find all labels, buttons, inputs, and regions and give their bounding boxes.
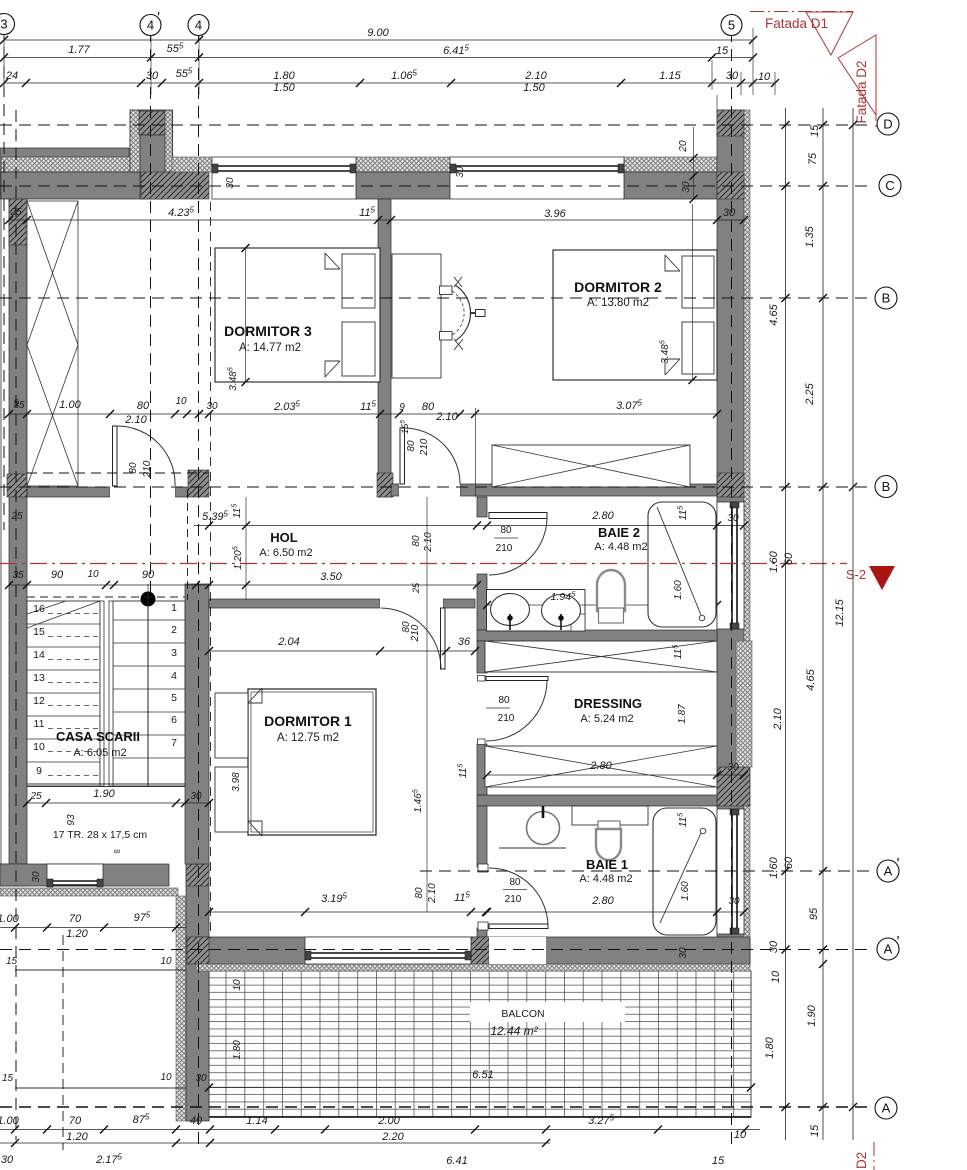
svg-text:DRESSING: DRESSING (574, 696, 642, 711)
svg-text:30: 30 (726, 70, 739, 82)
svg-text:A: 14.77 m2: A: 14.77 m2 (239, 342, 301, 354)
svg-text:11: 11 (34, 718, 45, 730)
svg-text:30: 30 (681, 181, 692, 193)
svg-text:210: 210 (505, 894, 522, 905)
svg-text:B: B (882, 479, 891, 494)
svg-text:4.65: 4.65 (768, 303, 780, 325)
svg-text:5: 5 (171, 692, 177, 704)
svg-text:2.04: 2.04 (277, 636, 299, 648)
svg-text:25: 25 (9, 207, 22, 218)
svg-text:30: 30 (146, 70, 159, 82)
svg-text:2.80: 2.80 (589, 760, 612, 772)
svg-text:2.25: 2.25 (804, 382, 816, 405)
svg-text:70: 70 (69, 913, 82, 925)
svg-text:1.15: 1.15 (659, 70, 681, 82)
svg-text:10: 10 (232, 979, 243, 991)
svg-text:10: 10 (87, 569, 99, 580)
svg-text:210: 210 (498, 713, 515, 724)
svg-text:1.00: 1.00 (59, 399, 81, 411)
svg-text:': ' (897, 933, 900, 950)
svg-text:4.65: 4.65 (805, 668, 817, 690)
svg-text:30: 30 (727, 762, 739, 773)
svg-text:15: 15 (33, 626, 45, 638)
svg-text:9: 9 (399, 402, 405, 413)
svg-text:A: 5.24 m2: A: 5.24 m2 (580, 713, 633, 725)
svg-text:1.14: 1.14 (246, 1115, 267, 1127)
svg-text:80: 80 (406, 440, 417, 452)
svg-text:A: A (882, 1101, 891, 1116)
svg-text:BAIE 2: BAIE 2 (598, 525, 640, 540)
svg-text:S-2: S-2 (846, 567, 866, 582)
svg-text:70: 70 (69, 1115, 82, 1127)
svg-text:80: 80 (128, 462, 139, 474)
svg-text:C: C (885, 178, 894, 193)
svg-text:3.96: 3.96 (544, 208, 566, 220)
svg-text:17 TR. 28 x 17,5 cm: 17 TR. 28 x 17,5 cm (53, 829, 148, 841)
svg-text:90: 90 (51, 569, 64, 581)
svg-text:2.80: 2.80 (591, 510, 614, 522)
svg-text:DORMITOR 1: DORMITOR 1 (264, 713, 352, 729)
svg-text:A: 13.80 m2: A: 13.80 m2 (587, 297, 649, 309)
svg-text:30: 30 (727, 513, 739, 524)
svg-text:4: 4 (195, 18, 202, 33)
svg-text:5: 5 (728, 18, 735, 33)
svg-text:A: 6.50 m2: A: 6.50 m2 (259, 547, 312, 559)
svg-text:25: 25 (411, 582, 421, 594)
svg-text:Fatada D2: Fatada D2 (854, 60, 869, 123)
svg-text:15: 15 (712, 1155, 725, 1167)
svg-text:DORMITOR 2: DORMITOR 2 (574, 279, 662, 295)
svg-text:80: 80 (500, 525, 512, 536)
svg-text:80: 80 (509, 877, 521, 888)
svg-text:': ' (157, 9, 160, 26)
svg-text:30: 30 (195, 1073, 207, 1084)
svg-text:3.98: 3.98 (231, 772, 242, 792)
svg-text:1.80: 1.80 (764, 1036, 776, 1058)
svg-text:2.10: 2.10 (427, 883, 438, 904)
svg-text:1.60: 1.60 (768, 856, 780, 878)
svg-text:210: 210 (142, 460, 153, 478)
svg-text:6: 6 (171, 714, 177, 726)
svg-text:80: 80 (422, 401, 435, 413)
svg-text:95: 95 (808, 907, 820, 920)
svg-text:13: 13 (33, 672, 45, 684)
svg-text:Fatada D1: Fatada D1 (765, 16, 828, 31)
svg-text:1: 1 (171, 602, 177, 614)
svg-text:1.20: 1.20 (66, 928, 88, 940)
svg-text:15: 15 (6, 956, 18, 967)
svg-text:2.00: 2.00 (377, 1115, 400, 1127)
svg-text:30: 30 (206, 401, 218, 412)
svg-text:HOL: HOL (270, 530, 298, 545)
svg-text:DORMITOR 3: DORMITOR 3 (224, 323, 312, 339)
svg-text:10: 10 (770, 970, 782, 983)
svg-text:1.50: 1.50 (523, 82, 545, 94)
svg-text:3.50: 3.50 (320, 571, 342, 583)
svg-text:30: 30 (728, 896, 740, 907)
svg-text:30: 30 (190, 791, 202, 802)
svg-text:1.87: 1.87 (677, 704, 688, 724)
svg-text:80: 80 (411, 535, 422, 547)
svg-text:A: 12.75 m2: A: 12.75 m2 (277, 732, 339, 744)
svg-text:D2: D2 (854, 1152, 869, 1169)
svg-text:2.10: 2.10 (435, 411, 458, 423)
svg-text:1.60: 1.60 (673, 580, 684, 600)
svg-text:1.00: 1.00 (0, 913, 20, 925)
svg-text:40: 40 (190, 1115, 203, 1127)
svg-text:1.80: 1.80 (232, 1040, 243, 1060)
svg-text:80: 80 (414, 887, 425, 899)
svg-text:10: 10 (758, 71, 771, 83)
svg-text:10: 10 (160, 1072, 172, 1083)
svg-text:3: 3 (171, 647, 177, 659)
svg-text:2.80: 2.80 (591, 895, 614, 907)
svg-text:6.41: 6.41 (446, 1155, 467, 1167)
svg-text:30: 30 (225, 177, 236, 189)
svg-text:93: 93 (66, 814, 77, 826)
svg-text:1.60: 1.60 (680, 881, 691, 901)
svg-text:30: 30 (455, 166, 466, 178)
svg-text:BALCON: BALCON (501, 1008, 544, 1020)
svg-text:10: 10 (734, 1129, 747, 1141)
svg-text:210: 210 (410, 624, 421, 642)
svg-text:30: 30 (768, 940, 780, 953)
svg-text:9: 9 (36, 765, 42, 777)
svg-text:30: 30 (723, 207, 736, 219)
svg-text:14: 14 (33, 649, 45, 661)
svg-text:25: 25 (29, 791, 42, 802)
svg-text:1.00: 1.00 (0, 1115, 20, 1127)
svg-text:6.51: 6.51 (472, 1069, 493, 1081)
svg-text:25: 25 (10, 511, 23, 522)
svg-text:1.90: 1.90 (93, 788, 115, 800)
svg-text:CASA SCARII: CASA SCARII (56, 729, 140, 744)
svg-text:30: 30 (31, 871, 42, 883)
svg-text:2.10: 2.10 (423, 532, 434, 553)
svg-text:4: 4 (147, 18, 154, 33)
svg-text:80: 80 (498, 695, 510, 706)
svg-text:4: 4 (171, 670, 177, 682)
svg-text:1.77: 1.77 (68, 44, 90, 56)
svg-text:D: D (883, 117, 892, 132)
svg-text:16: 16 (33, 603, 45, 615)
svg-text:3: 3 (0, 17, 7, 32)
svg-text:10: 10 (175, 396, 187, 407)
svg-text:80: 80 (137, 400, 150, 412)
svg-text:1.80: 1.80 (273, 70, 295, 82)
svg-text:15: 15 (716, 45, 729, 57)
svg-text:': ' (897, 855, 900, 872)
svg-text:90: 90 (142, 569, 155, 581)
svg-text:2.10: 2.10 (524, 70, 547, 82)
svg-text:24: 24 (5, 70, 18, 82)
svg-text:15: 15 (809, 124, 821, 137)
svg-text:A: A (884, 864, 893, 879)
svg-text:30: 30 (678, 947, 689, 959)
svg-text:36: 36 (458, 636, 471, 648)
svg-text:12: 12 (33, 695, 45, 707)
svg-text:75: 75 (807, 152, 819, 165)
svg-text:2.20: 2.20 (381, 1131, 404, 1143)
svg-text:30: 30 (1, 1154, 14, 1166)
svg-text:210: 210 (419, 438, 430, 456)
svg-text:1.20: 1.20 (66, 1131, 88, 1143)
svg-text:15: 15 (809, 1124, 821, 1137)
svg-text:1.60: 1.60 (768, 550, 780, 572)
svg-text:210: 210 (496, 543, 513, 554)
svg-text:1.50: 1.50 (273, 82, 295, 94)
svg-text:A: 4.48 m2: A: 4.48 m2 (579, 873, 632, 885)
svg-text:∞: ∞ (114, 846, 120, 856)
svg-text:BAIE 1: BAIE 1 (586, 857, 628, 872)
svg-text:12.15: 12.15 (834, 598, 846, 626)
svg-text:A: 6.05 m2: A: 6.05 m2 (73, 747, 126, 759)
svg-text:10: 10 (33, 741, 45, 753)
svg-text:20: 20 (678, 140, 689, 153)
svg-text:2.10: 2.10 (772, 707, 784, 730)
svg-text:10: 10 (160, 956, 172, 967)
svg-text:35: 35 (12, 570, 24, 581)
svg-text:2.10: 2.10 (124, 414, 147, 426)
svg-text:60: 60 (783, 552, 795, 565)
svg-text:15: 15 (2, 1073, 14, 1084)
svg-text:12.44 m²: 12.44 m² (490, 1024, 538, 1038)
svg-text:9.00: 9.00 (367, 27, 389, 39)
svg-text:2: 2 (171, 624, 177, 636)
svg-text:A: A (884, 942, 893, 957)
svg-text:A: 4.48 m2: A: 4.48 m2 (594, 541, 647, 553)
svg-text:1.90: 1.90 (806, 1004, 818, 1026)
svg-text:7: 7 (171, 737, 177, 749)
svg-text:60: 60 (783, 856, 795, 869)
svg-text:B: B (882, 291, 891, 306)
svg-text:1.35: 1.35 (804, 225, 816, 247)
